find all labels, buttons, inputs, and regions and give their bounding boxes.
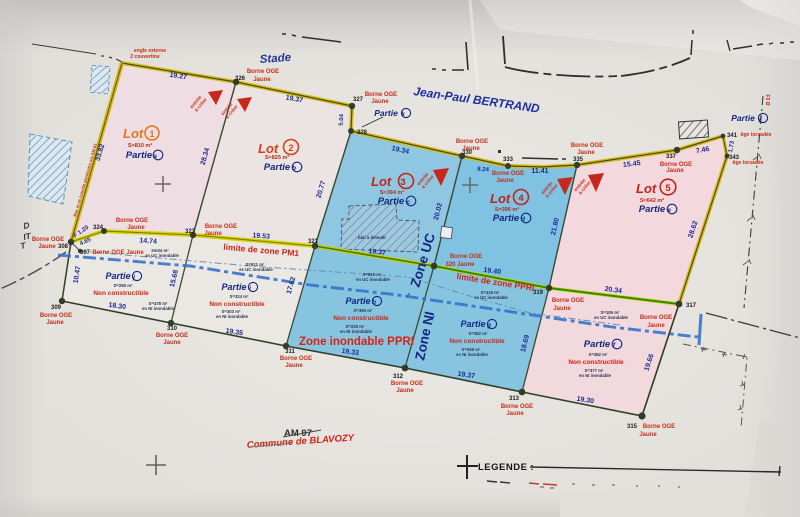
svg-text:Partie: Partie [221, 282, 246, 292]
svg-text:Partie: Partie [493, 213, 520, 224]
svg-text:a: a [153, 153, 157, 160]
svg-text:Non constructible: Non constructible [449, 338, 505, 345]
svg-text:Borne OGE: Borne OGE [32, 237, 64, 243]
svg-text:307: 307 [80, 250, 91, 256]
svg-text:Non constructible: Non constructible [209, 301, 265, 308]
svg-text:Borne OGE: Borne OGE [205, 224, 237, 230]
svg-text:308: 308 [58, 244, 69, 250]
svg-text:Stade: Stade [259, 52, 292, 66]
svg-text:Jaune: Jaune [163, 340, 181, 346]
svg-text:es UC inondable: es UC inondable [239, 267, 273, 272]
svg-text:en NI inondable: en NI inondable [340, 329, 373, 334]
svg-text:e: e [667, 207, 671, 214]
svg-text:309: 309 [51, 305, 62, 311]
svg-text:j: j [132, 274, 135, 281]
svg-text:F3 Ø: F3 Ø [764, 94, 770, 105]
svg-text:Jaune: Jaune [553, 306, 571, 312]
svg-text:Jaune: Jaune [647, 323, 665, 329]
svg-text:Zone inondable PPRI: Zone inondable PPRI [299, 336, 414, 348]
svg-text:i: i [249, 285, 251, 292]
svg-text:2 couvertine: 2 couvertine [130, 54, 160, 60]
svg-text:Lot: Lot [258, 141, 279, 156]
svg-text:b: b [292, 165, 296, 172]
svg-text:Borne OGE: Borne OGE [450, 254, 482, 260]
svg-text:Jaune: Jaune [577, 150, 595, 156]
svg-text:es UC inondable: es UC inondable [474, 295, 508, 300]
svg-text:Jaune: Jaune [639, 432, 657, 438]
svg-text:S=350 m²: S=350 m² [354, 308, 374, 313]
svg-text:333: 333 [503, 157, 514, 163]
svg-text:Partie: Partie [378, 196, 405, 207]
svg-text:Partie: Partie [126, 150, 153, 161]
svg-text:317: 317 [686, 303, 697, 309]
svg-text:c: c [406, 199, 410, 206]
svg-text:4: 4 [518, 193, 524, 204]
svg-text:Borne OGE: Borne OGE [492, 171, 524, 177]
svg-text:j: j [758, 116, 761, 123]
svg-text:Borne OGE: Borne OGE [571, 143, 603, 149]
svg-text:337: 337 [666, 154, 677, 160]
svg-text:en UC inondable: en UC inondable [594, 315, 629, 320]
svg-text:319: 319 [533, 290, 544, 296]
svg-text:321: 321 [308, 239, 319, 245]
svg-text:Jaune: Jaune [46, 320, 64, 326]
svg-text:326: 326 [235, 76, 246, 82]
svg-text:tige torsadée: tige torsadée [732, 160, 763, 166]
svg-text:14.74: 14.74 [139, 237, 157, 245]
svg-text:Non constructible: Non constructible [333, 315, 389, 322]
svg-text:tige torsadée: tige torsadée [740, 132, 771, 138]
svg-text:Borne OGE: Borne OGE [640, 315, 672, 321]
svg-text:h: h [372, 299, 376, 306]
svg-text:341: 341 [727, 133, 738, 139]
svg-text:es NI inondable: es NI inondable [456, 352, 488, 357]
svg-text:Borne OGE: Borne OGE [365, 92, 397, 98]
svg-text:Jaune: Jaune [396, 388, 414, 394]
svg-text:Lot: Lot [371, 174, 392, 189]
svg-text:Borne OGE: Borne OGE [552, 298, 584, 304]
svg-text:Jaune: Jaune [38, 244, 56, 250]
svg-text:Borne OGE Jaune: Borne OGE Jaune [92, 250, 144, 256]
svg-text:Borne OGE: Borne OGE [501, 404, 533, 410]
svg-text:Jaune: Jaune [285, 363, 303, 369]
svg-text:Partie: Partie [345, 296, 370, 306]
svg-text:Partie: Partie [105, 271, 130, 281]
svg-text:Partie: Partie [584, 339, 611, 350]
svg-text:en NI inondable: en NI inondable [142, 306, 175, 311]
svg-text:Jaune: Jaune [506, 411, 524, 417]
svg-text:Borne OGE: Borne OGE [280, 356, 312, 362]
svg-text:Jaune: Jaune [496, 178, 514, 184]
svg-text:310: 310 [167, 326, 178, 332]
svg-text:S=394 m²: S=394 m² [380, 189, 404, 196]
svg-text:g: g [486, 322, 491, 329]
svg-text:313: 313 [509, 396, 520, 402]
svg-text:Partie: Partie [731, 113, 755, 123]
svg-text:5: 5 [665, 183, 671, 194]
svg-text:Borne OGE: Borne OGE [391, 381, 423, 387]
svg-text:Jaune: Jaune [253, 77, 271, 83]
svg-text:Borne OGE: Borne OGE [456, 139, 488, 145]
svg-text:327: 327 [353, 97, 364, 103]
svg-text:Partie: Partie [639, 204, 666, 215]
svg-text:en NI inondable: en NI inondable [216, 314, 249, 319]
svg-text:Jaune: Jaune [666, 168, 684, 174]
svg-text:312: 312 [393, 374, 404, 380]
svg-text:S=362 m²: S=362 m² [469, 331, 489, 336]
svg-text:en UC inondable: en UC inondable [356, 277, 391, 282]
svg-text:Lot: Lot [123, 126, 144, 141]
svg-text:1: 1 [149, 129, 154, 139]
svg-text:k: k [401, 111, 405, 118]
svg-text:320 Jaune: 320 Jaune [445, 262, 475, 268]
svg-text:Lot: Lot [490, 191, 511, 206]
svg-text:2: 2 [288, 143, 293, 154]
svg-text:335: 335 [573, 157, 584, 163]
svg-text:Lot: Lot [636, 181, 657, 196]
svg-text:S=642 m²: S=642 m² [640, 197, 664, 204]
svg-text:328: 328 [357, 130, 368, 136]
svg-text:S=255 m²: S=255 m² [114, 283, 134, 288]
svg-text:S=324 m²: S=324 m² [230, 294, 250, 299]
svg-text:Non constructible: Non constructible [568, 359, 624, 366]
svg-text:S=382 m²: S=382 m² [589, 352, 609, 357]
svg-text:S=810 m²: S=810 m² [128, 142, 152, 149]
svg-text:Partie: Partie [374, 108, 398, 118]
svg-text:5.04: 5.04 [339, 113, 346, 126]
svg-text:Partie: Partie [264, 162, 291, 173]
svg-text:323: 323 [185, 229, 196, 235]
svg-text:Borne OGE: Borne OGE [247, 69, 279, 75]
svg-text:an UC inondable: an UC inondable [145, 253, 180, 258]
svg-text:315: 315 [627, 424, 638, 430]
svg-text:Borne OGE: Borne OGE [116, 218, 148, 224]
svg-text:en NI inondable: en NI inondable [579, 373, 612, 378]
svg-text:Jaune: Jaune [204, 231, 222, 237]
svg-text:330: 330 [462, 150, 473, 156]
svg-text:311: 311 [285, 349, 295, 355]
svg-text:Borne OGE: Borne OGE [643, 424, 675, 430]
svg-text:bâti à démolir: bâti à démolir [358, 235, 386, 240]
svg-text:8.24: 8.24 [477, 167, 490, 174]
svg-text:LEGENDE :: LEGENDE : [478, 462, 534, 473]
svg-text:Non constructible: Non constructible [93, 290, 149, 297]
svg-text:11.41: 11.41 [531, 168, 548, 175]
svg-text:S=825 m²: S=825 m² [265, 154, 289, 161]
svg-text:Borne OGE: Borne OGE [156, 333, 188, 339]
svg-text:S=396 m²: S=396 m² [495, 206, 519, 213]
svg-text:3: 3 [400, 177, 405, 188]
svg-text:Jaune: Jaune [127, 225, 145, 231]
svg-text:324: 324 [93, 225, 104, 231]
svg-text:Jaune: Jaune [371, 99, 389, 105]
svg-text:Partie: Partie [460, 319, 485, 329]
svg-text:Borne OGE: Borne OGE [40, 313, 72, 319]
